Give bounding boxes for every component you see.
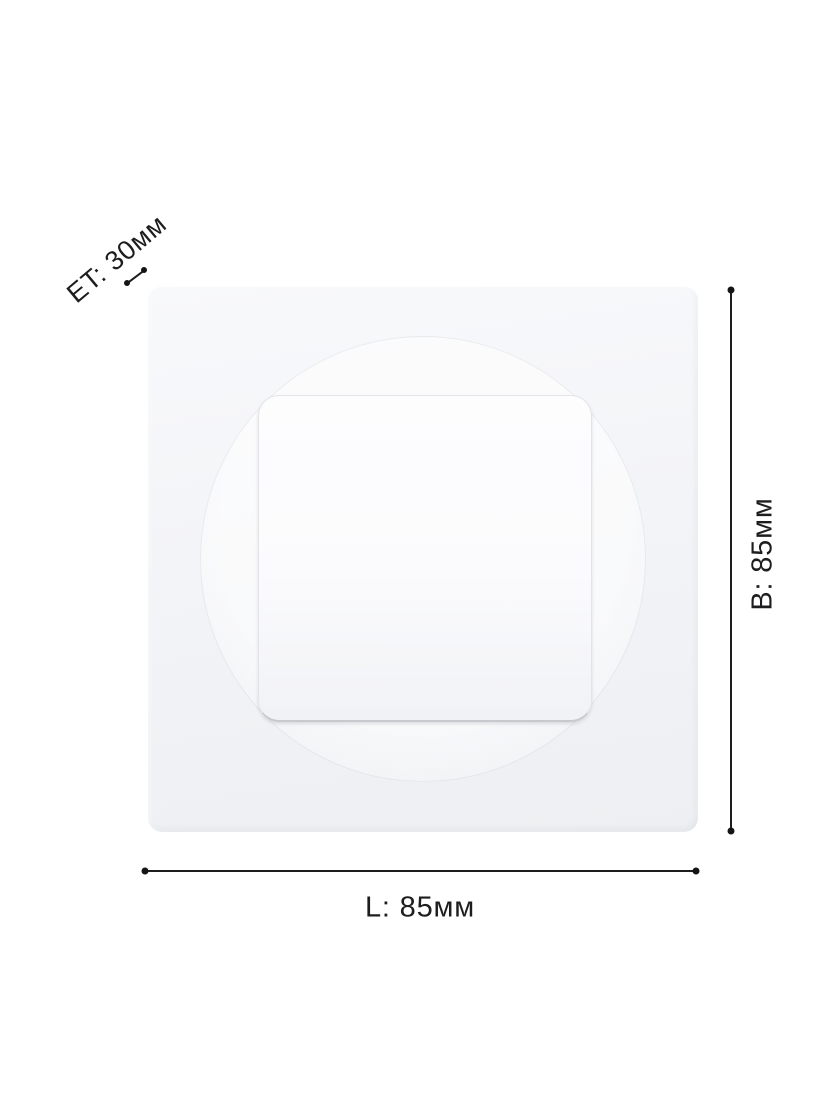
dimension-endpoint-dot xyxy=(728,287,735,294)
length-dimension-label: L: 85мм xyxy=(365,892,475,925)
height-dimension-label: B: 85мм xyxy=(747,497,780,610)
dimension-endpoint-dot xyxy=(124,280,130,286)
product-dimension-diagram: B: 85мм L: 85мм ET: 30мм xyxy=(0,0,840,1120)
dimension-endpoint-dot xyxy=(141,267,147,273)
dimension-endpoint-dot xyxy=(693,868,700,875)
panel-frame xyxy=(148,285,698,832)
height-dimension-line xyxy=(730,289,732,832)
dimension-endpoint-dot xyxy=(142,868,149,875)
dimension-endpoint-dot xyxy=(728,828,735,835)
inner-light-surface xyxy=(258,395,592,722)
length-dimension-line xyxy=(144,870,697,872)
